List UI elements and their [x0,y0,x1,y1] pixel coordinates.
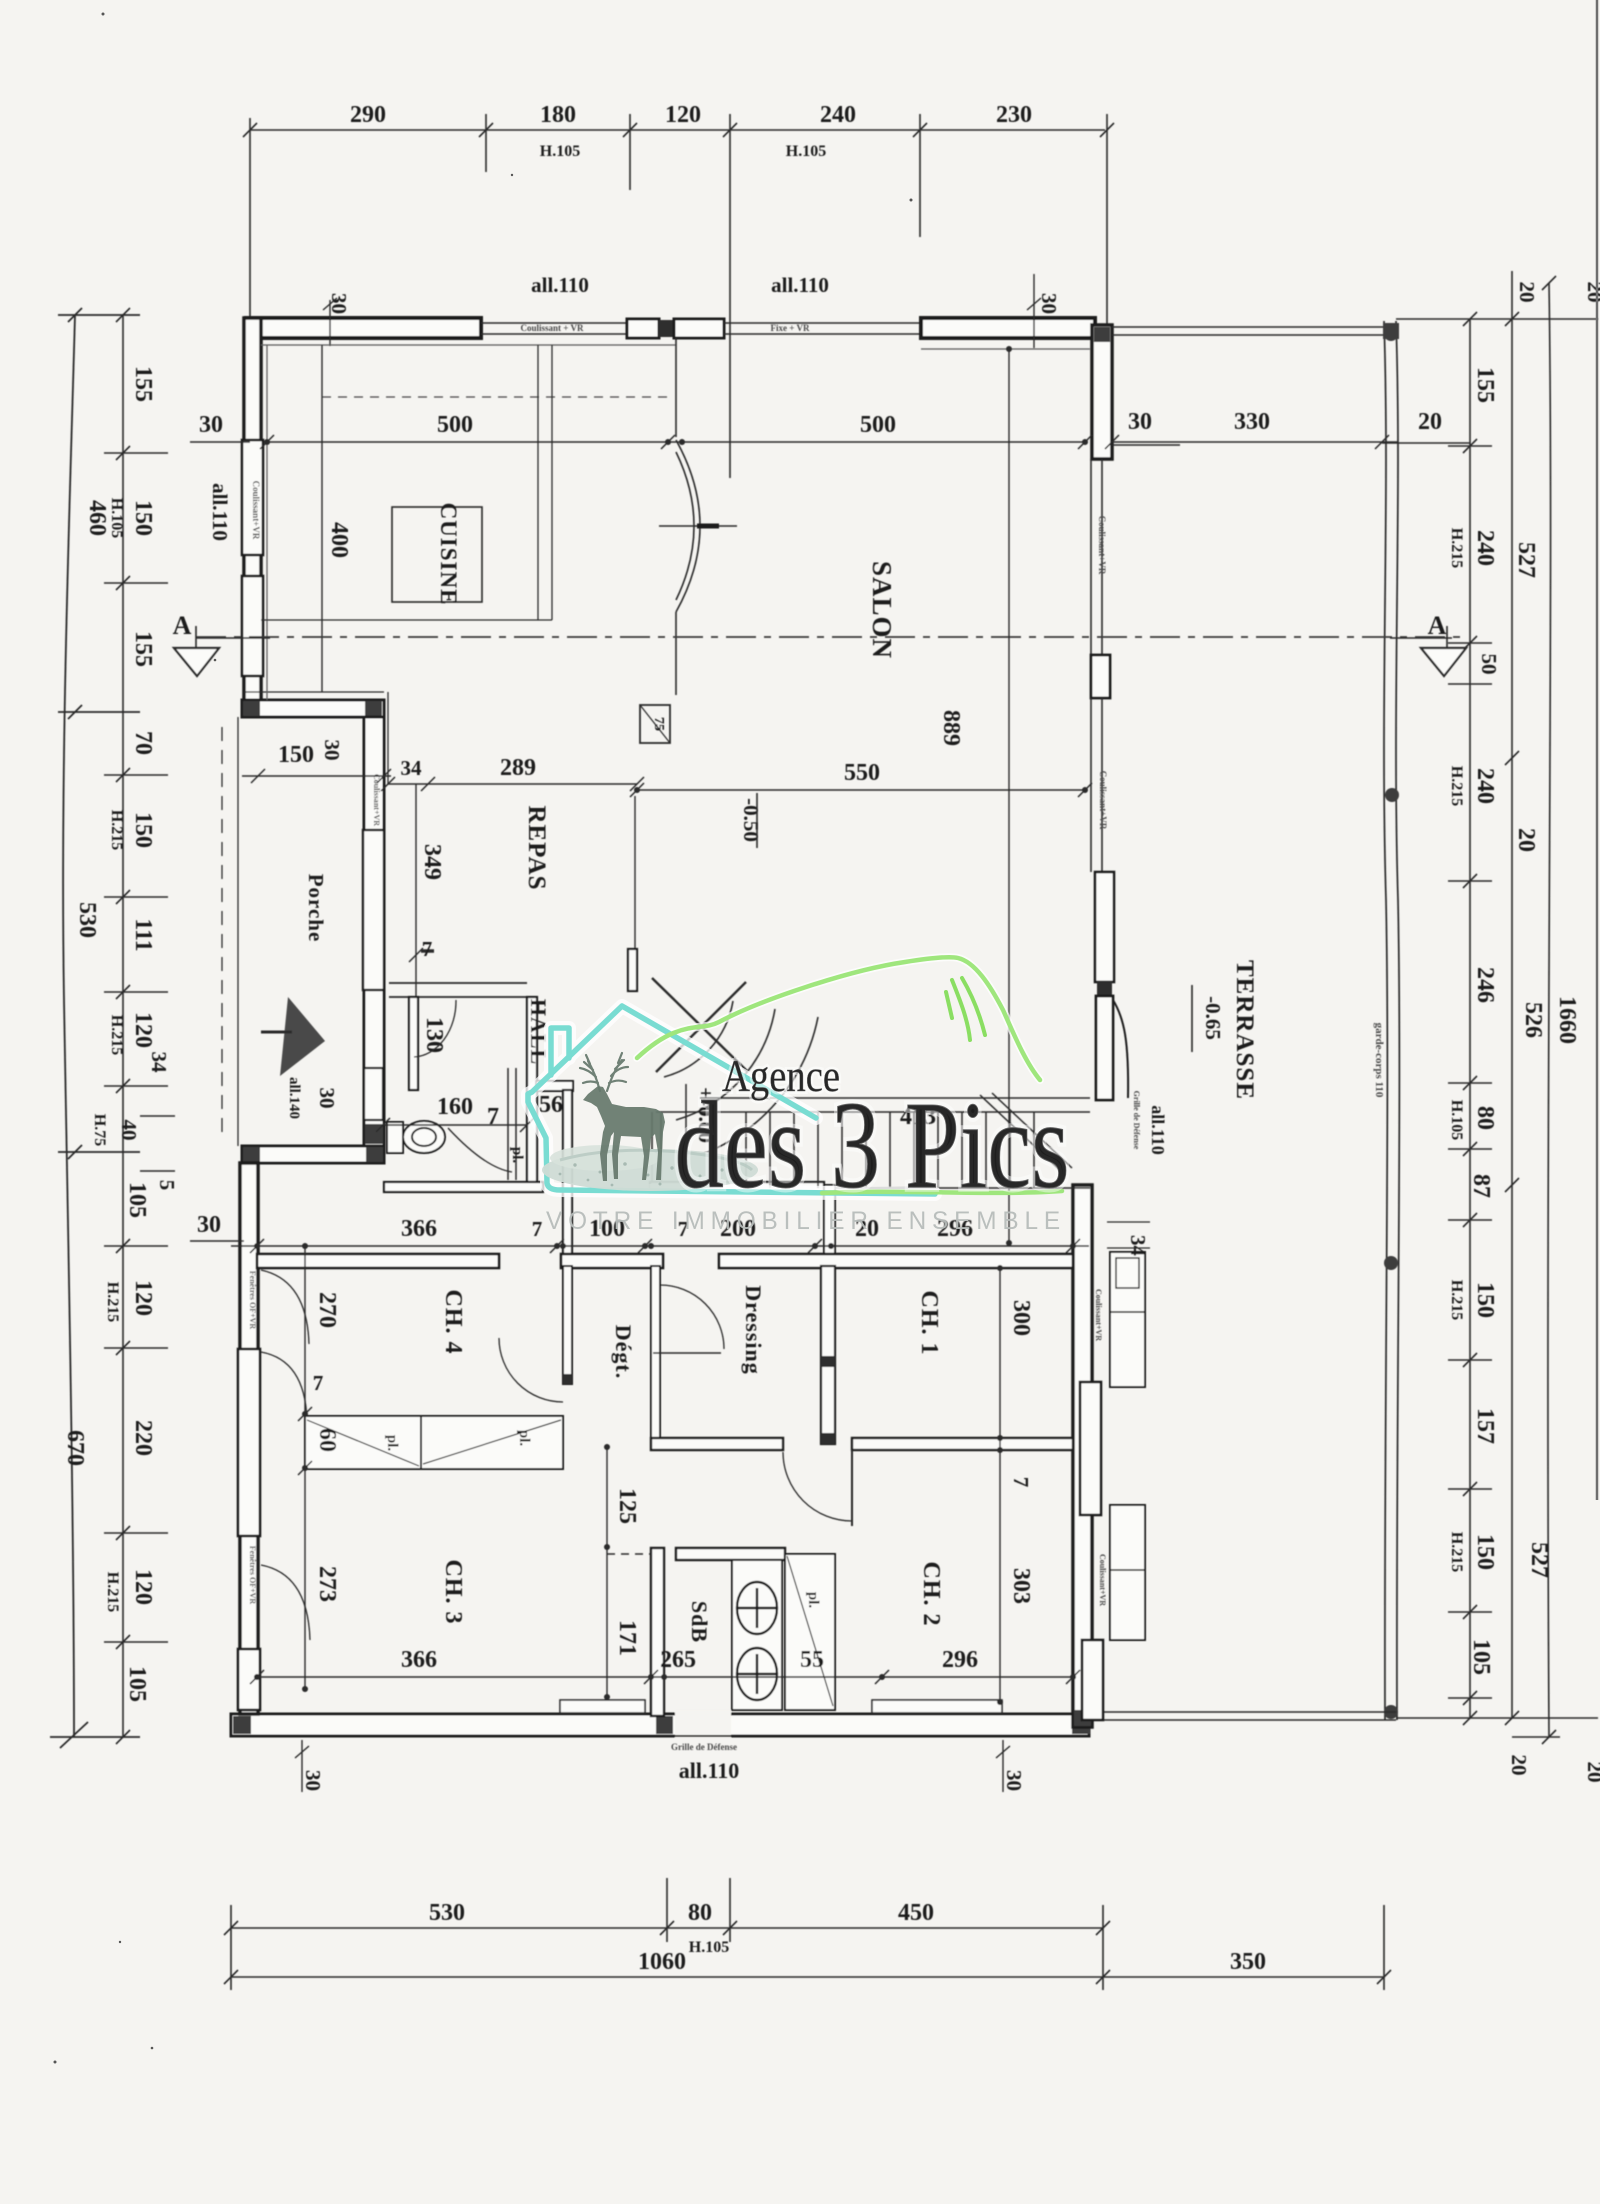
svg-text:500: 500 [860,412,896,438]
svg-text:H.215: H.215 [104,1282,121,1322]
svg-text:303: 303 [1008,1568,1034,1604]
svg-text:pl.: pl. [805,1592,821,1609]
svg-text:Grille de Défense: Grille de Défense [671,1742,737,1752]
svg-text:all.110: all.110 [208,483,232,541]
svg-text:H.105: H.105 [786,143,826,160]
svg-text:Coulissant+VR: Coulissant+VR [251,481,261,540]
svg-text:530: 530 [74,902,100,938]
svg-text:A: A [173,611,192,640]
svg-text:265: 265 [660,1647,696,1673]
svg-text:30: 30 [301,1770,325,1791]
svg-text:527: 527 [1513,542,1539,578]
svg-text:30: 30 [1128,409,1152,435]
svg-text:366: 366 [401,1216,437,1242]
svg-text:30: 30 [197,1212,221,1238]
svg-text:290: 290 [350,102,386,128]
svg-text:220: 220 [130,1420,156,1456]
svg-text:20: 20 [1418,409,1442,435]
svg-text:450: 450 [898,1900,934,1926]
svg-text:150: 150 [1472,1534,1498,1570]
svg-text:40: 40 [117,1120,141,1141]
svg-text:Coulissant+VR: Coulissant+VR [1094,1289,1103,1341]
svg-text:150: 150 [278,742,314,768]
svg-text:30: 30 [320,740,344,761]
svg-text:pl.: pl. [516,1430,532,1447]
svg-text:Coulissant + VR: Coulissant + VR [521,323,584,333]
svg-text:240: 240 [1472,530,1498,566]
svg-text:REPAS: REPAS [523,805,550,890]
svg-text:120: 120 [665,102,701,128]
svg-text:1060: 1060 [638,1949,686,1975]
svg-text:20: 20 [1515,282,1539,303]
svg-text:155: 155 [130,631,156,667]
svg-text:H.215: H.215 [108,810,125,850]
svg-text:500: 500 [437,412,473,438]
svg-text:75: 75 [651,717,666,731]
svg-text:34: 34 [147,1052,171,1074]
svg-text:125: 125 [614,1488,640,1524]
svg-text:70: 70 [130,731,156,755]
svg-text:120: 120 [130,1012,156,1048]
svg-text:Porche: Porche [304,874,328,943]
svg-text:5: 5 [155,1180,179,1191]
svg-text:30: 30 [315,1088,339,1109]
svg-text:400: 400 [326,522,352,558]
svg-text:Coulissant+VR: Coulissant+VR [1098,1554,1107,1606]
svg-text:CH. 2: CH. 2 [918,1562,944,1627]
svg-text:TERRASSE: TERRASSE [1231,960,1258,1100]
svg-text:Fixe + VR: Fixe + VR [771,323,810,333]
svg-text:180: 180 [540,102,576,128]
svg-text:240: 240 [820,102,856,128]
svg-text:350: 350 [1230,1949,1266,1975]
svg-text:Coulissant+VR: Coulissant+VR [372,774,381,826]
svg-text:160: 160 [437,1094,473,1120]
svg-text:7: 7 [487,1104,499,1130]
svg-text:155: 155 [130,366,156,402]
svg-text:all.110: all.110 [679,1758,740,1783]
svg-text:garde-corps 110: garde-corps 110 [1373,1023,1385,1098]
svg-text:H.215: H.215 [1448,1280,1465,1320]
svg-text:7: 7 [532,1217,543,1241]
svg-text:55: 55 [800,1647,824,1673]
svg-text:30: 30 [1037,293,1061,314]
svg-text:SdB: SdB [687,1601,712,1643]
svg-text:120: 120 [130,1280,156,1316]
svg-text:pl.: pl. [384,1435,400,1452]
svg-text:527: 527 [1526,1542,1552,1578]
svg-text:all.110: all.110 [771,273,829,297]
svg-text:H.215: H.215 [108,1015,125,1055]
svg-text:pl.: pl. [509,1147,525,1164]
svg-text:H.215: H.215 [1448,1532,1465,1572]
svg-text:270: 270 [314,1292,340,1328]
svg-text:all.110: all.110 [531,273,589,297]
svg-text:246: 246 [1472,967,1498,1003]
svg-text:H.215: H.215 [1448,528,1465,568]
svg-text:Coulissant+VR: Coulissant+VR [1097,516,1107,575]
svg-text:-0.50: -0.50 [739,798,763,842]
svg-text:all.110: all.110 [1148,1105,1168,1155]
svg-text:7: 7 [313,1371,324,1395]
svg-text:CUISINE: CUISINE [436,503,461,606]
svg-text:CH. 4: CH. 4 [440,1290,466,1355]
svg-text:240: 240 [1472,768,1498,804]
svg-text:130: 130 [421,1017,447,1053]
svg-text:80: 80 [688,1900,712,1926]
svg-text:Coulissant+VR: Coulissant+VR [1098,771,1108,830]
svg-text:34: 34 [1126,1235,1150,1257]
svg-text:87: 87 [1468,1174,1494,1198]
svg-text:550: 550 [844,760,880,786]
svg-text:366: 366 [401,1647,437,1673]
svg-text:526: 526 [1520,1002,1546,1038]
svg-text:111: 111 [130,918,156,951]
svg-text:56: 56 [539,1092,563,1118]
svg-text:230: 230 [996,102,1032,128]
svg-text:30: 30 [1002,1770,1026,1791]
svg-text:273: 273 [314,1566,340,1602]
svg-text:H.215: H.215 [1448,766,1465,806]
svg-text:H.105: H.105 [540,143,580,160]
svg-text:150: 150 [1472,1282,1498,1318]
svg-text:300: 300 [1008,1300,1034,1336]
svg-text:157: 157 [1472,1408,1498,1444]
svg-text:Dégt.: Dégt. [611,1325,636,1379]
svg-text:530: 530 [429,1900,465,1926]
svg-text:all.140: all.140 [286,1077,302,1119]
svg-text:105: 105 [124,1182,150,1218]
svg-text:20: 20 [1507,1755,1531,1776]
svg-text:155: 155 [1472,367,1498,403]
svg-text:H.105: H.105 [1448,1100,1465,1140]
svg-text:Fenêtres OF+VR: Fenêtres OF+VR [248,1271,257,1330]
svg-text:460: 460 [84,500,110,536]
svg-text:Fenêtres OF+VR: Fenêtres OF+VR [248,1546,257,1605]
svg-text:CH. 3: CH. 3 [440,1560,466,1625]
svg-text:A: A [1428,611,1447,640]
svg-text:330: 330 [1234,409,1270,435]
svg-text:289: 289 [500,755,536,781]
svg-text:Grille de Défense: Grille de Défense [1132,1091,1141,1150]
svg-text:SALON: SALON [867,561,897,659]
svg-text:7: 7 [422,937,433,961]
svg-text:105: 105 [124,1666,150,1702]
svg-text:60: 60 [314,1428,340,1452]
svg-text:20: 20 [1583,1762,1600,1783]
svg-text:H.105: H.105 [108,498,125,538]
svg-text:CH. 1: CH. 1 [916,1291,942,1356]
svg-text:296: 296 [942,1647,978,1673]
svg-text:20: 20 [1513,828,1539,852]
svg-text:VOTRE IMMOBILIER ENSEMBLE: VOTRE IMMOBILIER ENSEMBLE [546,1207,1066,1235]
svg-text:H.105: H.105 [689,1939,729,1956]
svg-text:30: 30 [199,412,223,438]
svg-text:des 3 Pics: des 3 Pics [675,1077,1070,1215]
svg-text:1660: 1660 [1554,996,1580,1044]
svg-text:150: 150 [130,500,156,536]
svg-text:7: 7 [1009,1477,1033,1488]
svg-text:889: 889 [938,710,964,746]
svg-text:120: 120 [130,1569,156,1605]
svg-text:105: 105 [1468,1639,1494,1675]
svg-text:171: 171 [614,1620,640,1656]
svg-text:150: 150 [130,812,156,848]
svg-text:50: 50 [1477,654,1501,675]
svg-text:H.215: H.215 [104,1572,121,1612]
svg-text:349: 349 [419,844,445,880]
svg-text:670: 670 [62,1430,88,1466]
svg-text:Dressing: Dressing [741,1285,766,1375]
svg-text:80: 80 [1472,1106,1498,1130]
svg-text:H.75: H.75 [91,1114,108,1146]
svg-text:-0.65: -0.65 [1201,996,1225,1040]
svg-text:34: 34 [401,756,423,780]
